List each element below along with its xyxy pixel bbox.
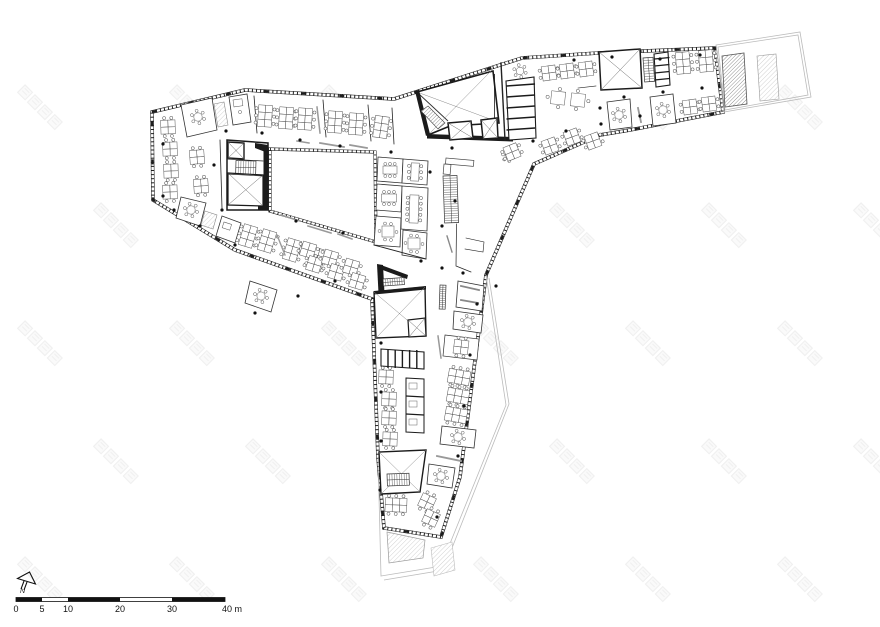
svg-text:30: 30 — [167, 604, 177, 614]
svg-text:20: 20 — [115, 604, 125, 614]
svg-text:5: 5 — [39, 604, 44, 614]
svg-text:0: 0 — [13, 604, 18, 614]
svg-text:40 m: 40 m — [222, 604, 242, 614]
svg-text:10: 10 — [63, 604, 73, 614]
